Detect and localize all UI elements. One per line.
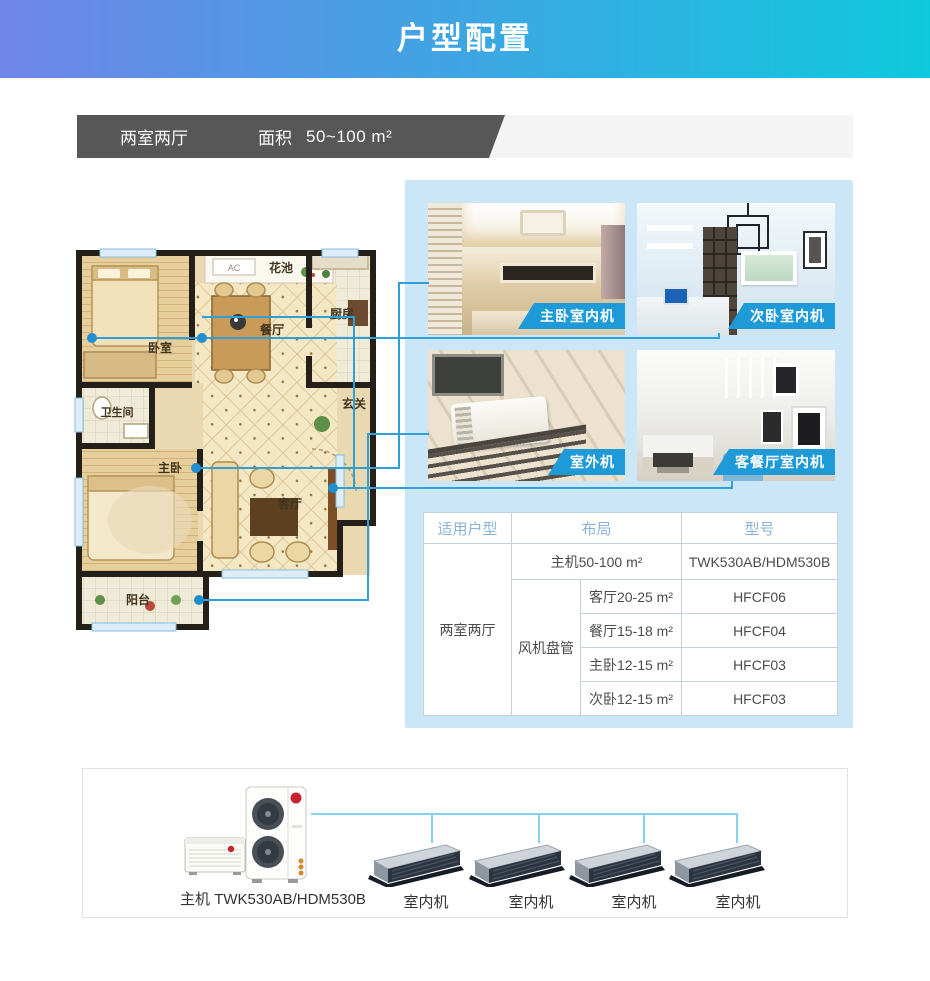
cell-layout: 餐厅15-18 m²	[581, 614, 682, 648]
page: 户型配置 两室两厅 面积 50~100 m²	[0, 0, 930, 981]
spec-table: 适用户型 布局 型号 两室两厅 主机50-100 m² TWK530AB/HDM…	[423, 512, 838, 716]
connector-dot	[194, 595, 204, 605]
room-label-bathroom: 卫生间	[101, 405, 134, 419]
picture-frame-decor	[803, 231, 827, 269]
outdoor-host-unit	[244, 785, 310, 885]
banner-area-value: 50~100 m²	[306, 127, 392, 147]
banner-area-label: 面积	[258, 124, 292, 149]
page-title: 户型配置	[0, 0, 930, 78]
curtain-decor	[601, 225, 625, 299]
room-label-bedroom: 卧室	[148, 340, 172, 355]
cell-unit-type: 两室两厅	[424, 544, 512, 716]
room-label-dining: 餐厅	[260, 322, 284, 337]
banner-track: 两室两厅 面积 50~100 m²	[77, 115, 853, 158]
ac-label: AC	[228, 263, 241, 273]
cell-layout: 主卧12-15 m²	[581, 648, 682, 682]
chandelier-decor	[725, 358, 779, 398]
floor-plan: AC 花池	[70, 240, 390, 635]
cell-host-layout: 主机50-100 m²	[512, 544, 682, 580]
cell-model: HFCF04	[682, 614, 838, 648]
poster-decor	[773, 364, 799, 396]
system-diagram: 主机 TWK530AB/HDM530B 室内机 室内机 室内机 室内机	[82, 768, 848, 918]
room-label-flower-bed: 花池	[269, 260, 293, 275]
photo-outdoor-unit: 室外机	[428, 350, 625, 481]
col-header-layout: 布局	[512, 513, 682, 544]
room-label-master: 主卧	[158, 460, 182, 475]
poster-decor	[761, 410, 783, 444]
connector-line	[731, 481, 733, 489]
banner: 两室两厅 面积 50~100 m²	[77, 115, 505, 158]
connector-line	[353, 316, 355, 489]
indoor-unit-label: 室内机	[604, 891, 664, 912]
cell-layout: 客厅20-25 m²	[581, 580, 682, 614]
indoor-duct-unit	[368, 839, 464, 887]
refrigerant-pipe	[643, 813, 645, 843]
connector-dot	[191, 463, 201, 473]
connector-line	[199, 599, 367, 601]
refrigerant-pipe	[431, 813, 433, 843]
page-header: 户型配置	[0, 0, 930, 78]
banner-unit-type: 两室两厅	[120, 124, 188, 149]
connector-line	[367, 433, 429, 435]
photo-label-living-dining: 客餐厅室内机	[713, 449, 835, 475]
hydro-module-unit	[183, 832, 249, 878]
connector-dot	[87, 333, 97, 343]
room-label-living: 客厅	[277, 496, 302, 511]
indoor-unit-label: 室内机	[708, 891, 768, 912]
connector-line	[92, 337, 718, 339]
ceiling-lamp-icon	[520, 210, 566, 236]
photo-second-indoor-unit: 次卧室内机	[637, 203, 835, 335]
connector-line	[398, 282, 400, 469]
photo-living-dining-indoor-unit: 客餐厅室内机	[637, 350, 835, 481]
poster-decor	[791, 406, 827, 452]
indoor-duct-unit	[669, 839, 765, 887]
photo-label-master: 主卧室内机	[518, 303, 625, 329]
window-decor	[741, 251, 797, 285]
cell-model: HFCF03	[682, 648, 838, 682]
shutter-decor	[428, 203, 462, 335]
connector-line	[398, 282, 429, 284]
window-decor	[432, 354, 504, 396]
room-label-balcony: 阳台	[126, 592, 150, 607]
col-header-model: 型号	[682, 513, 838, 544]
photo-master-indoor-unit: 主卧室内机	[428, 203, 625, 335]
monitor-icon	[663, 287, 689, 305]
connector-line	[367, 433, 369, 601]
connector-dot	[328, 483, 338, 493]
refrigerant-pipe	[538, 813, 540, 843]
connector-dot	[197, 333, 207, 343]
connector-line	[333, 487, 731, 489]
indoor-duct-unit	[469, 839, 565, 887]
table-decor	[653, 453, 693, 467]
room-label-kitchen: 厨房	[330, 306, 354, 321]
info-panel: 主卧室内机 次卧室内机 室外机 客餐厅室内机	[405, 180, 853, 728]
refrigerant-pipe	[736, 813, 738, 843]
photo-label-second: 次卧室内机	[728, 303, 835, 329]
refrigerant-pipe	[311, 813, 737, 815]
wall-art-decor	[500, 263, 596, 283]
indoor-unit-label: 室内机	[501, 891, 561, 912]
cell-fan-coil-group: 风机盘管	[512, 580, 581, 716]
wall-shelf-decor	[647, 225, 693, 231]
connector-line	[202, 316, 353, 318]
indoor-unit-label: 室内机	[396, 891, 456, 912]
cell-host-model: TWK530AB/HDM530B	[682, 544, 838, 580]
host-unit-label: 主机 TWK530AB/HDM530B	[138, 888, 408, 909]
cell-model: HFCF03	[682, 682, 838, 716]
connector-line	[718, 333, 720, 339]
indoor-duct-unit	[569, 839, 665, 887]
col-header-unit-type: 适用户型	[424, 513, 512, 544]
cell-layout: 次卧12-15 m²	[581, 682, 682, 716]
cell-model: HFCF06	[682, 580, 838, 614]
